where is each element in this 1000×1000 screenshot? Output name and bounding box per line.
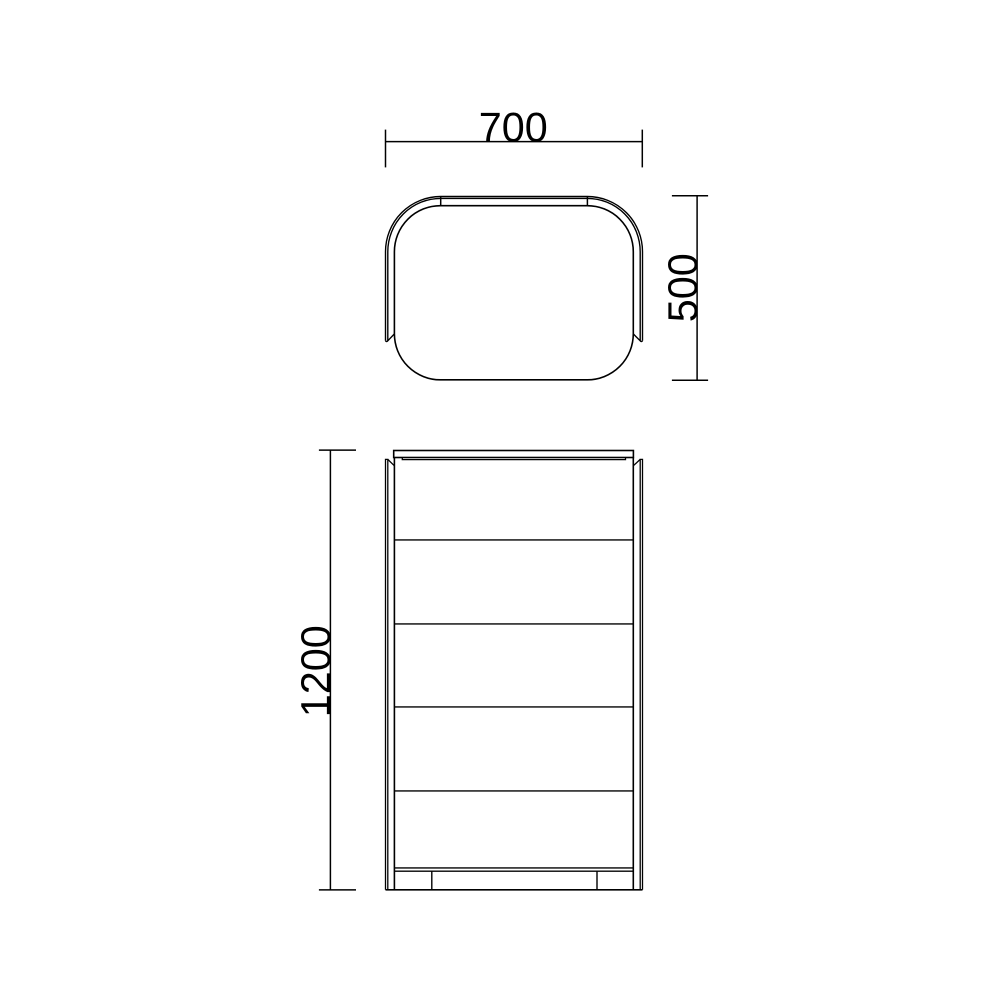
- svg-text:500: 500: [659, 253, 706, 322]
- svg-text:700: 700: [479, 103, 548, 150]
- svg-text:1200: 1200: [292, 625, 339, 717]
